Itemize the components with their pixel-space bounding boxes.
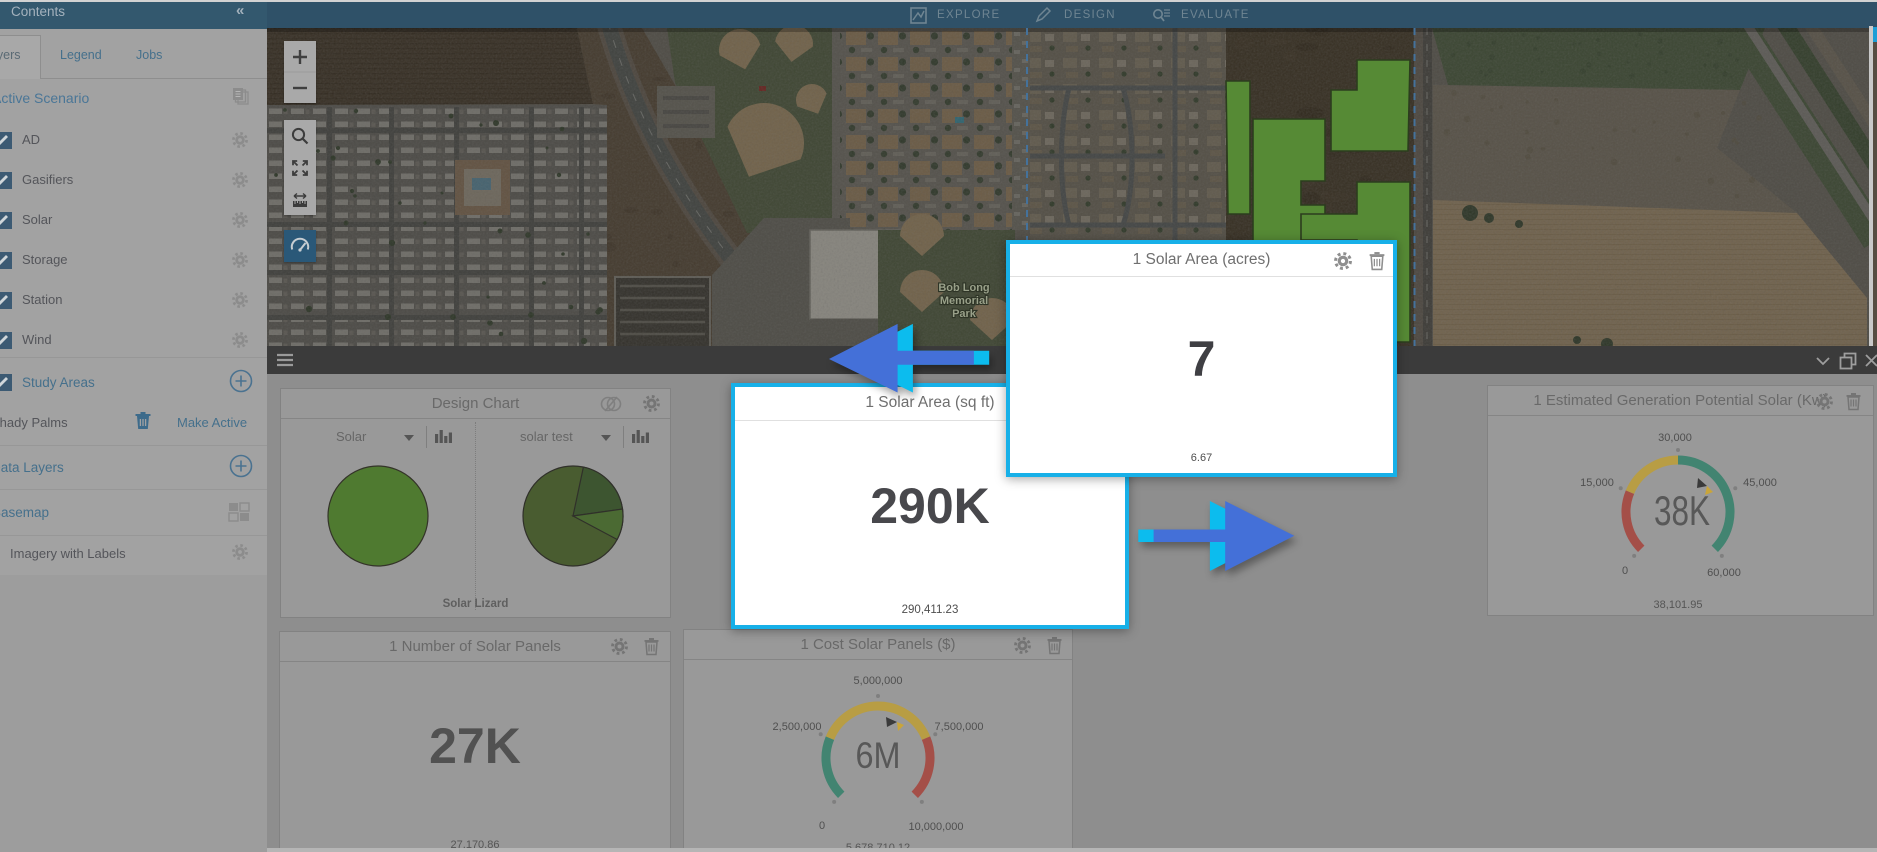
svg-text:38K: 38K xyxy=(1654,487,1710,534)
svg-text:30,000: 30,000 xyxy=(1658,432,1692,444)
svg-text:Memorial: Memorial xyxy=(940,295,988,307)
svg-text:38,101.95: 38,101.95 xyxy=(1654,599,1703,611)
svg-text:10,000,000: 10,000,000 xyxy=(908,821,963,833)
svg-text:7,500,000: 7,500,000 xyxy=(935,721,984,733)
svg-text:15,000: 15,000 xyxy=(1580,477,1614,489)
svg-text:60,000: 60,000 xyxy=(1707,567,1741,579)
svg-text:0: 0 xyxy=(1622,565,1628,577)
svg-text:5,000,000: 5,000,000 xyxy=(854,675,903,687)
svg-text:0: 0 xyxy=(819,820,825,832)
svg-text:2,500,000: 2,500,000 xyxy=(773,721,822,733)
svg-text:45,000: 45,000 xyxy=(1743,477,1777,489)
svg-text:6M: 6M xyxy=(856,735,901,776)
svg-text:Bob Long: Bob Long xyxy=(938,282,989,294)
